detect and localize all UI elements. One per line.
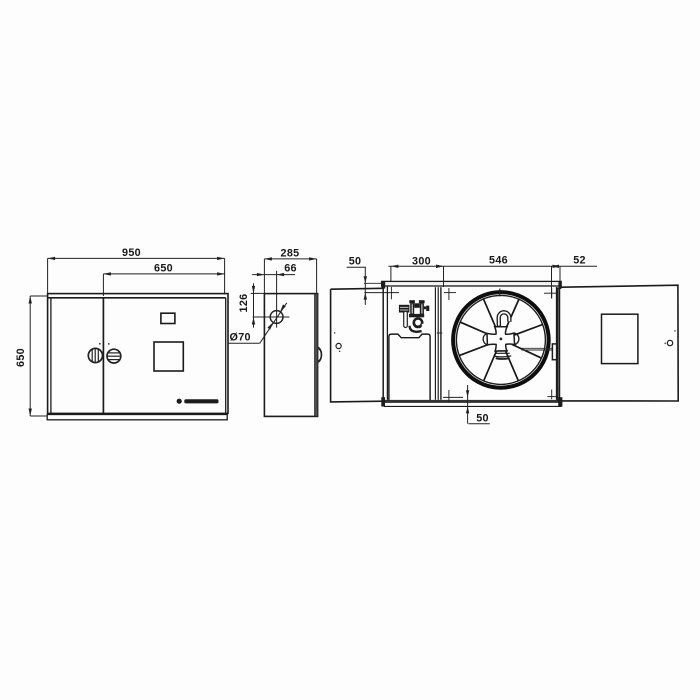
svg-text:52: 52 <box>573 255 586 267</box>
svg-text:50: 50 <box>476 413 489 425</box>
svg-text:300: 300 <box>412 255 431 267</box>
svg-text:650: 650 <box>154 263 173 275</box>
svg-text:126: 126 <box>238 294 250 313</box>
svg-text:Ø70: Ø70 <box>230 331 251 343</box>
svg-text:50: 50 <box>349 255 362 267</box>
svg-text:950: 950 <box>122 247 141 259</box>
svg-text:650: 650 <box>15 348 27 367</box>
svg-text:66: 66 <box>284 263 297 275</box>
svg-text:546: 546 <box>489 255 508 267</box>
svg-text:285: 285 <box>281 247 300 259</box>
